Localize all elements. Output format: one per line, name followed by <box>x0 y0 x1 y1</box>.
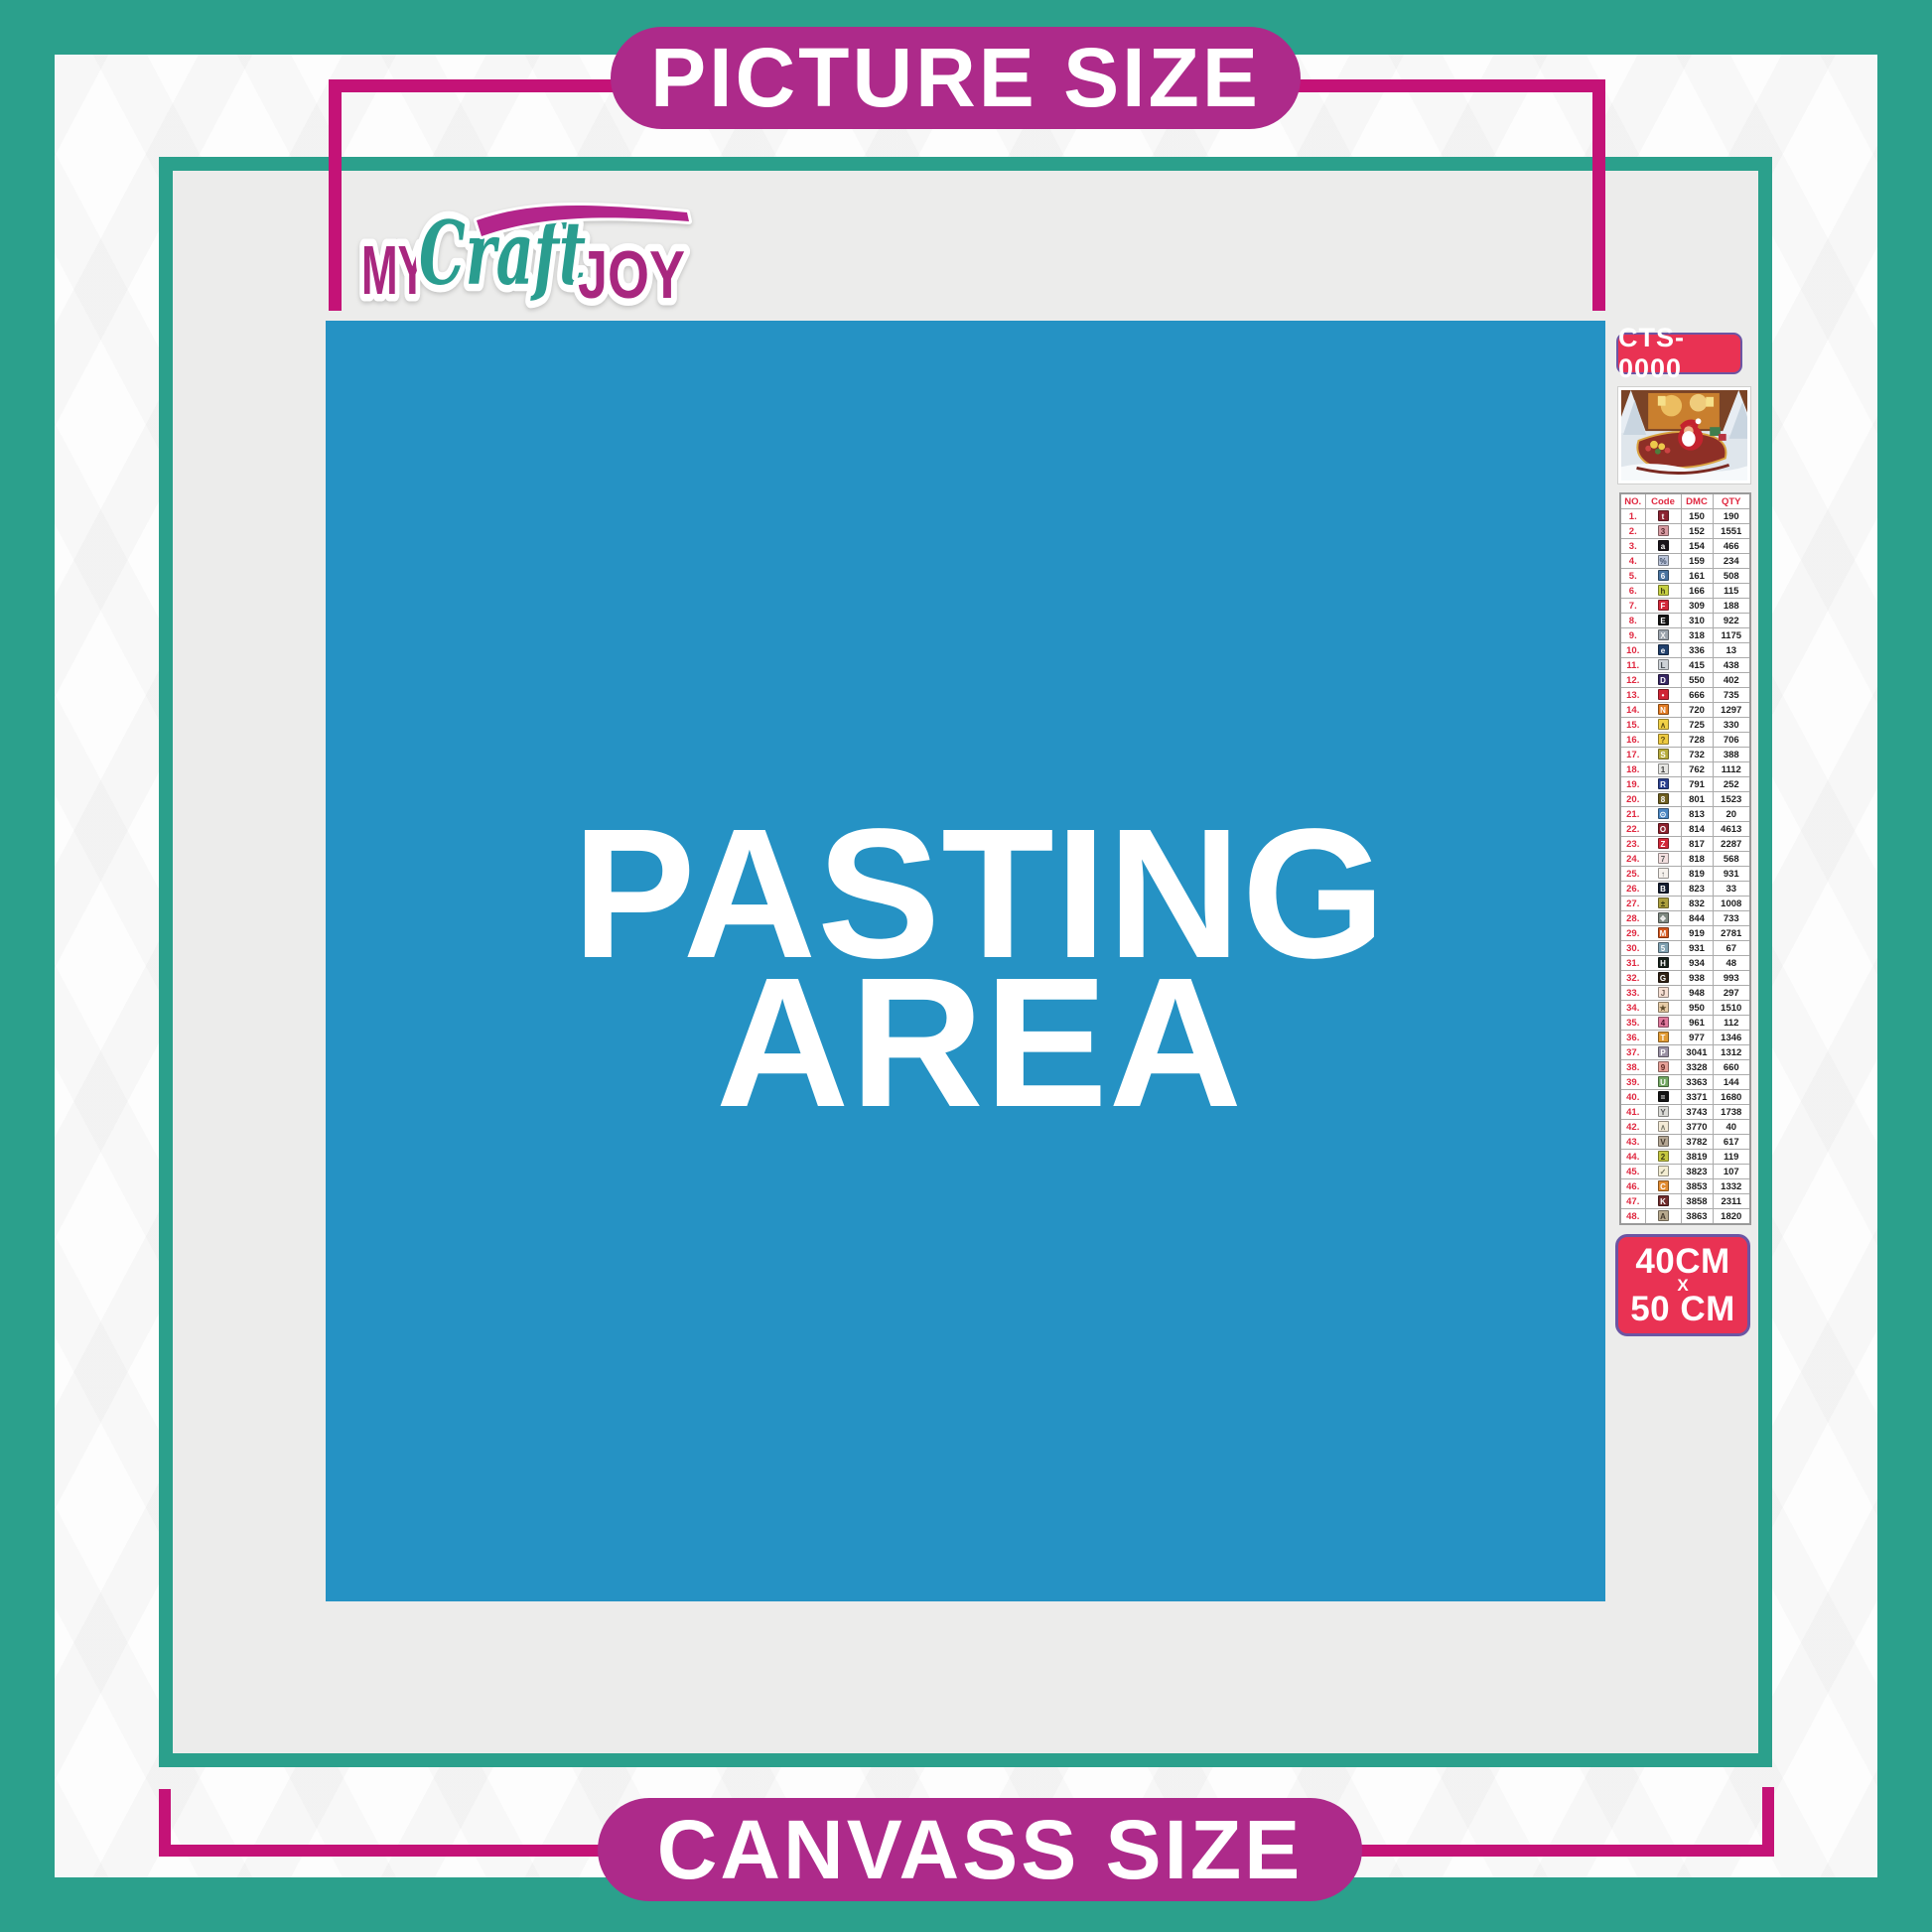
row-code-cell: e <box>1645 643 1681 658</box>
color-symbol-chip: A <box>1658 1210 1669 1221</box>
color-symbol-chip: e <box>1658 644 1669 655</box>
row-quantity: 67 <box>1713 941 1750 956</box>
row-code-cell: 1 <box>1645 762 1681 777</box>
chart-row: 41. Y 3743 1738 <box>1620 1105 1750 1120</box>
row-code-cell: t <box>1645 509 1681 524</box>
chart-row: 1. t 150 190 <box>1620 509 1750 524</box>
row-number: 15. <box>1620 718 1645 733</box>
row-number: 7. <box>1620 599 1645 614</box>
row-dmc-code: 732 <box>1681 748 1713 762</box>
row-quantity: 1297 <box>1713 703 1750 718</box>
row-code-cell: V <box>1645 1135 1681 1150</box>
row-quantity: 330 <box>1713 718 1750 733</box>
row-dmc-code: 3823 <box>1681 1165 1713 1179</box>
row-quantity: 4613 <box>1713 822 1750 837</box>
chart-row: 48. A 3863 1820 <box>1620 1209 1750 1225</box>
row-number: 42. <box>1620 1120 1645 1135</box>
row-dmc-code: 844 <box>1681 911 1713 926</box>
row-dmc-code: 3328 <box>1681 1060 1713 1075</box>
row-dmc-code: 550 <box>1681 673 1713 688</box>
row-number: 43. <box>1620 1135 1645 1150</box>
row-dmc-code: 948 <box>1681 986 1713 1001</box>
canvas-size-badge: 40CM X 50 CM <box>1615 1234 1750 1336</box>
row-code-cell: S <box>1645 748 1681 762</box>
row-quantity: 617 <box>1713 1135 1750 1150</box>
logo-word-my: MY <box>361 231 427 309</box>
chart-row: 26. B 823 33 <box>1620 882 1750 897</box>
row-dmc-code: 3819 <box>1681 1150 1713 1165</box>
row-quantity: 1332 <box>1713 1179 1750 1194</box>
row-code-cell: ? <box>1645 733 1681 748</box>
row-code-cell: ∧ <box>1645 718 1681 733</box>
color-symbol-chip: J <box>1658 987 1669 998</box>
canvass-bracket-right-leg <box>1762 1787 1774 1857</box>
color-symbol-chip: H <box>1658 957 1669 968</box>
chart-row: 19. R 791 252 <box>1620 777 1750 792</box>
color-symbol-chip: R <box>1658 778 1669 789</box>
color-symbol-chip: t <box>1658 510 1669 521</box>
row-code-cell: 5 <box>1645 941 1681 956</box>
row-dmc-code: 154 <box>1681 539 1713 554</box>
row-number: 39. <box>1620 1075 1645 1090</box>
row-quantity: 1112 <box>1713 762 1750 777</box>
row-code-cell: G <box>1645 971 1681 986</box>
row-quantity: 1820 <box>1713 1209 1750 1225</box>
chart-row: 34. ★ 950 1510 <box>1620 1001 1750 1016</box>
row-quantity: 20 <box>1713 807 1750 822</box>
header-no: NO. <box>1620 493 1645 509</box>
chart-row: 46. C 3853 1332 <box>1620 1179 1750 1194</box>
row-dmc-code: 415 <box>1681 658 1713 673</box>
color-symbol-chip: 9 <box>1658 1061 1669 1072</box>
row-quantity: 144 <box>1713 1075 1750 1090</box>
row-number: 23. <box>1620 837 1645 852</box>
row-quantity: 735 <box>1713 688 1750 703</box>
picture-bracket-left-leg <box>329 79 342 311</box>
row-quantity: 40 <box>1713 1120 1750 1135</box>
row-code-cell: ✓ <box>1645 1165 1681 1179</box>
color-symbol-chip: G <box>1658 972 1669 983</box>
chart-row: 23. Z 817 2287 <box>1620 837 1750 852</box>
row-number: 5. <box>1620 569 1645 584</box>
row-dmc-code: 310 <box>1681 614 1713 628</box>
row-dmc-code: 938 <box>1681 971 1713 986</box>
row-dmc-code: 977 <box>1681 1031 1713 1045</box>
canvass-bracket-left-leg <box>159 1789 171 1857</box>
row-code-cell: L <box>1645 658 1681 673</box>
row-quantity: 1680 <box>1713 1090 1750 1105</box>
row-number: 47. <box>1620 1194 1645 1209</box>
picture-size-banner: PICTURE SIZE <box>611 27 1301 129</box>
canvass-size-label: CANVASS SIZE <box>657 1802 1304 1898</box>
row-code-cell: 2 <box>1645 1150 1681 1165</box>
row-dmc-code: 919 <box>1681 926 1713 941</box>
row-quantity: 13 <box>1713 643 1750 658</box>
color-symbol-chip: ❖ <box>1658 912 1669 923</box>
chart-row: 15. ∧ 725 330 <box>1620 718 1750 733</box>
row-code-cell: H <box>1645 956 1681 971</box>
row-number: 9. <box>1620 628 1645 643</box>
chart-row: 7. F 309 188 <box>1620 599 1750 614</box>
color-symbol-chip: 5 <box>1658 942 1669 953</box>
row-code-cell: K <box>1645 1194 1681 1209</box>
row-dmc-code: 309 <box>1681 599 1713 614</box>
color-symbol-chip: ⊙ <box>1658 808 1669 819</box>
row-quantity: 1346 <box>1713 1031 1750 1045</box>
chart-row: 25. ↑ 819 931 <box>1620 867 1750 882</box>
color-symbol-chip: a <box>1658 540 1669 551</box>
color-symbol-chip: 6 <box>1658 570 1669 581</box>
row-code-cell: X <box>1645 628 1681 643</box>
color-symbol-chip: P <box>1658 1046 1669 1057</box>
row-quantity: 1523 <box>1713 792 1750 807</box>
chart-row: 17. S 732 388 <box>1620 748 1750 762</box>
color-symbol-chip: C <box>1658 1180 1669 1191</box>
row-number: 34. <box>1620 1001 1645 1016</box>
color-symbol-chip: • <box>1658 689 1669 700</box>
row-quantity: 234 <box>1713 554 1750 569</box>
row-dmc-code: 3371 <box>1681 1090 1713 1105</box>
row-number: 32. <box>1620 971 1645 986</box>
row-code-cell: R <box>1645 777 1681 792</box>
row-code-cell: ★ <box>1645 1001 1681 1016</box>
chart-row: 21. ⊙ 813 20 <box>1620 807 1750 822</box>
row-number: 36. <box>1620 1031 1645 1045</box>
row-number: 45. <box>1620 1165 1645 1179</box>
row-code-cell: • <box>1645 688 1681 703</box>
color-symbol-chip: ∧ <box>1658 719 1669 730</box>
row-dmc-code: 961 <box>1681 1016 1713 1031</box>
color-symbol-chip: V <box>1658 1136 1669 1147</box>
row-quantity: 922 <box>1713 614 1750 628</box>
row-code-cell: F <box>1645 599 1681 614</box>
row-dmc-code: 817 <box>1681 837 1713 852</box>
row-number: 38. <box>1620 1060 1645 1075</box>
row-code-cell: ❖ <box>1645 911 1681 926</box>
color-symbol-chip: K <box>1658 1195 1669 1206</box>
row-dmc-code: 950 <box>1681 1001 1713 1016</box>
row-code-cell: P <box>1645 1045 1681 1060</box>
color-symbol-chip: T <box>1658 1032 1669 1042</box>
row-code-cell: 6 <box>1645 569 1681 584</box>
row-number: 2. <box>1620 524 1645 539</box>
product-layout-graphic: PICTURE SIZE CANVASS SIZE PASTING AREA M… <box>0 0 1932 1932</box>
row-code-cell: A <box>1645 1209 1681 1225</box>
row-dmc-code: 318 <box>1681 628 1713 643</box>
row-quantity: 297 <box>1713 986 1750 1001</box>
row-quantity: 993 <box>1713 971 1750 986</box>
row-number: 18. <box>1620 762 1645 777</box>
row-quantity: 252 <box>1713 777 1750 792</box>
color-symbol-chip: B <box>1658 883 1669 894</box>
row-number: 28. <box>1620 911 1645 926</box>
row-dmc-code: 3782 <box>1681 1135 1713 1150</box>
row-quantity: 1175 <box>1713 628 1750 643</box>
row-number: 27. <box>1620 897 1645 911</box>
product-code-label: CTS-0000 <box>1618 323 1740 384</box>
chart-row: 6. h 166 115 <box>1620 584 1750 599</box>
picture-size-label: PICTURE SIZE <box>650 30 1261 126</box>
row-dmc-code: 934 <box>1681 956 1713 971</box>
color-symbol-chip: E <box>1658 615 1669 625</box>
chart-row: 18. 1 762 1112 <box>1620 762 1750 777</box>
chart-row: 40. = 3371 1680 <box>1620 1090 1750 1105</box>
row-number: 4. <box>1620 554 1645 569</box>
row-dmc-code: 3041 <box>1681 1045 1713 1060</box>
row-code-cell: E <box>1645 614 1681 628</box>
row-number: 1. <box>1620 509 1645 524</box>
row-code-cell: ± <box>1645 897 1681 911</box>
chart-row: 20. 8 801 1523 <box>1620 792 1750 807</box>
color-symbol-chip: ± <box>1658 897 1669 908</box>
row-number: 11. <box>1620 658 1645 673</box>
row-number: 12. <box>1620 673 1645 688</box>
row-code-cell: Z <box>1645 837 1681 852</box>
color-symbol-chip: ★ <box>1658 1002 1669 1013</box>
color-symbol-chip: ∧ <box>1658 1121 1669 1132</box>
chart-row: 9. X 318 1175 <box>1620 628 1750 643</box>
row-dmc-code: 3770 <box>1681 1120 1713 1135</box>
row-dmc-code: 814 <box>1681 822 1713 837</box>
row-number: 17. <box>1620 748 1645 762</box>
row-code-cell: N <box>1645 703 1681 718</box>
row-quantity: 706 <box>1713 733 1750 748</box>
row-dmc-code: 720 <box>1681 703 1713 718</box>
dmc-color-chart: NO. Code DMC QTY 1. t 150 190 2. 3 152 1… <box>1619 492 1751 1225</box>
chart-row: 10. e 336 13 <box>1620 643 1750 658</box>
row-number: 21. <box>1620 807 1645 822</box>
chart-row: 16. ? 728 706 <box>1620 733 1750 748</box>
row-number: 8. <box>1620 614 1645 628</box>
header-qty: QTY <box>1713 493 1750 509</box>
chart-row: 8. E 310 922 <box>1620 614 1750 628</box>
color-symbol-chip: M <box>1658 927 1669 938</box>
color-symbol-chip: D <box>1658 674 1669 685</box>
color-symbol-chip: Y <box>1658 1106 1669 1117</box>
chart-row: 33. J 948 297 <box>1620 986 1750 1001</box>
mycraftjoy-logo-art: MY Craft JOY <box>349 189 697 320</box>
row-code-cell: U <box>1645 1075 1681 1090</box>
logo-word-joy: JOY <box>578 237 685 313</box>
chart-row: 45. ✓ 3823 107 <box>1620 1165 1750 1179</box>
row-quantity: 1312 <box>1713 1045 1750 1060</box>
row-code-cell: = <box>1645 1090 1681 1105</box>
chart-row: 4. % 159 234 <box>1620 554 1750 569</box>
row-code-cell: D <box>1645 673 1681 688</box>
row-dmc-code: 166 <box>1681 584 1713 599</box>
color-symbol-chip: % <box>1658 555 1669 566</box>
chart-row: 13. • 666 735 <box>1620 688 1750 703</box>
chart-row: 38. 9 3328 660 <box>1620 1060 1750 1075</box>
row-code-cell: B <box>1645 882 1681 897</box>
row-quantity: 33 <box>1713 882 1750 897</box>
row-dmc-code: 813 <box>1681 807 1713 822</box>
row-quantity: 2781 <box>1713 926 1750 941</box>
chart-row: 37. P 3041 1312 <box>1620 1045 1750 1060</box>
row-code-cell: a <box>1645 539 1681 554</box>
chart-row: 35. 4 961 112 <box>1620 1016 1750 1031</box>
row-quantity: 2287 <box>1713 837 1750 852</box>
color-symbol-chip: N <box>1658 704 1669 715</box>
chart-row: 14. N 720 1297 <box>1620 703 1750 718</box>
row-dmc-code: 3858 <box>1681 1194 1713 1209</box>
color-symbol-chip: = <box>1658 1091 1669 1102</box>
row-dmc-code: 161 <box>1681 569 1713 584</box>
row-quantity: 388 <box>1713 748 1750 762</box>
row-quantity: 733 <box>1713 911 1750 926</box>
row-quantity: 115 <box>1713 584 1750 599</box>
mycraftjoy-logo: MY Craft JOY <box>349 189 697 320</box>
row-dmc-code: 762 <box>1681 762 1713 777</box>
chart-row: 27. ± 832 1008 <box>1620 897 1750 911</box>
size-line3: 50 CM <box>1630 1293 1735 1325</box>
row-code-cell: % <box>1645 554 1681 569</box>
color-symbol-chip: ? <box>1658 734 1669 745</box>
row-quantity: 190 <box>1713 509 1750 524</box>
color-symbol-chip: X <box>1658 629 1669 640</box>
product-thumbnail <box>1618 387 1750 483</box>
row-quantity: 931 <box>1713 867 1750 882</box>
row-quantity: 438 <box>1713 658 1750 673</box>
chart-row: 2. 3 152 1551 <box>1620 524 1750 539</box>
row-dmc-code: 728 <box>1681 733 1713 748</box>
chart-row: 28. ❖ 844 733 <box>1620 911 1750 926</box>
chart-row: 36. T 977 1346 <box>1620 1031 1750 1045</box>
color-symbol-chip: 7 <box>1658 853 1669 864</box>
chart-row: 11. L 415 438 <box>1620 658 1750 673</box>
row-dmc-code: 3363 <box>1681 1075 1713 1090</box>
color-symbol-chip: 3 <box>1658 525 1669 536</box>
row-number: 19. <box>1620 777 1645 792</box>
chart-row: 47. K 3858 2311 <box>1620 1194 1750 1209</box>
picture-bracket-right-leg <box>1592 79 1605 311</box>
row-code-cell: J <box>1645 986 1681 1001</box>
santa-sleigh-thumbnail-art <box>1621 390 1747 481</box>
color-symbol-chip: F <box>1658 600 1669 611</box>
size-line1: 40CM <box>1635 1245 1729 1278</box>
row-number: 13. <box>1620 688 1645 703</box>
row-code-cell: O <box>1645 822 1681 837</box>
row-quantity: 1008 <box>1713 897 1750 911</box>
row-code-cell: 7 <box>1645 852 1681 867</box>
row-code-cell: h <box>1645 584 1681 599</box>
row-number: 26. <box>1620 882 1645 897</box>
row-number: 40. <box>1620 1090 1645 1105</box>
row-dmc-code: 3853 <box>1681 1179 1713 1194</box>
color-symbol-chip: ✓ <box>1658 1166 1669 1176</box>
row-dmc-code: 3863 <box>1681 1209 1713 1225</box>
color-symbol-chip: 2 <box>1658 1151 1669 1162</box>
row-number: 3. <box>1620 539 1645 554</box>
row-code-cell: T <box>1645 1031 1681 1045</box>
canvass-size-banner: CANVASS SIZE <box>598 1798 1362 1901</box>
color-symbol-chip: O <box>1658 823 1669 834</box>
row-code-cell: ↑ <box>1645 867 1681 882</box>
row-number: 29. <box>1620 926 1645 941</box>
color-symbol-chip: L <box>1658 659 1669 670</box>
color-symbol-chip: 4 <box>1658 1017 1669 1028</box>
row-number: 41. <box>1620 1105 1645 1120</box>
color-symbol-chip: U <box>1658 1076 1669 1087</box>
row-code-cell: M <box>1645 926 1681 941</box>
row-dmc-code: 159 <box>1681 554 1713 569</box>
row-quantity: 660 <box>1713 1060 1750 1075</box>
color-symbol-chip: 1 <box>1658 763 1669 774</box>
row-dmc-code: 150 <box>1681 509 1713 524</box>
row-number: 24. <box>1620 852 1645 867</box>
row-dmc-code: 819 <box>1681 867 1713 882</box>
product-code-badge: CTS-0000 <box>1616 333 1742 374</box>
row-quantity: 568 <box>1713 852 1750 867</box>
color-symbol-chip: ↑ <box>1658 868 1669 879</box>
row-quantity: 2311 <box>1713 1194 1750 1209</box>
row-quantity: 508 <box>1713 569 1750 584</box>
header-code: Code <box>1645 493 1681 509</box>
row-quantity: 188 <box>1713 599 1750 614</box>
row-dmc-code: 832 <box>1681 897 1713 911</box>
row-code-cell: Y <box>1645 1105 1681 1120</box>
row-quantity: 112 <box>1713 1016 1750 1031</box>
pasting-area: PASTING AREA <box>326 321 1605 1601</box>
row-quantity: 1510 <box>1713 1001 1750 1016</box>
row-number: 20. <box>1620 792 1645 807</box>
row-quantity: 402 <box>1713 673 1750 688</box>
row-quantity: 48 <box>1713 956 1750 971</box>
row-dmc-code: 931 <box>1681 941 1713 956</box>
row-code-cell: ⊙ <box>1645 807 1681 822</box>
row-dmc-code: 818 <box>1681 852 1713 867</box>
row-dmc-code: 152 <box>1681 524 1713 539</box>
row-number: 46. <box>1620 1179 1645 1194</box>
row-number: 31. <box>1620 956 1645 971</box>
row-number: 6. <box>1620 584 1645 599</box>
row-code-cell: ∧ <box>1645 1120 1681 1135</box>
row-dmc-code: 3743 <box>1681 1105 1713 1120</box>
chart-row: 39. U 3363 144 <box>1620 1075 1750 1090</box>
row-dmc-code: 336 <box>1681 643 1713 658</box>
row-code-cell: C <box>1645 1179 1681 1194</box>
row-dmc-code: 666 <box>1681 688 1713 703</box>
row-quantity: 119 <box>1713 1150 1750 1165</box>
chart-row: 5. 6 161 508 <box>1620 569 1750 584</box>
chart-row: 3. a 154 466 <box>1620 539 1750 554</box>
row-number: 35. <box>1620 1016 1645 1031</box>
chart-row: 29. M 919 2781 <box>1620 926 1750 941</box>
row-quantity: 1551 <box>1713 524 1750 539</box>
row-dmc-code: 801 <box>1681 792 1713 807</box>
chart-row: 22. O 814 4613 <box>1620 822 1750 837</box>
color-symbol-chip: S <box>1658 749 1669 759</box>
chart-row: 12. D 550 402 <box>1620 673 1750 688</box>
row-number: 44. <box>1620 1150 1645 1165</box>
row-number: 22. <box>1620 822 1645 837</box>
color-symbol-chip: h <box>1658 585 1669 596</box>
row-dmc-code: 823 <box>1681 882 1713 897</box>
row-quantity: 466 <box>1713 539 1750 554</box>
chart-row: 24. 7 818 568 <box>1620 852 1750 867</box>
color-symbol-chip: 8 <box>1658 793 1669 804</box>
header-dmc: DMC <box>1681 493 1713 509</box>
row-code-cell: 4 <box>1645 1016 1681 1031</box>
row-dmc-code: 725 <box>1681 718 1713 733</box>
row-number: 30. <box>1620 941 1645 956</box>
chart-row: 43. V 3782 617 <box>1620 1135 1750 1150</box>
row-code-cell: 8 <box>1645 792 1681 807</box>
chart-row: 30. 5 931 67 <box>1620 941 1750 956</box>
chart-row: 31. H 934 48 <box>1620 956 1750 971</box>
chart-header-row: NO. Code DMC QTY <box>1620 493 1750 509</box>
row-number: 10. <box>1620 643 1645 658</box>
